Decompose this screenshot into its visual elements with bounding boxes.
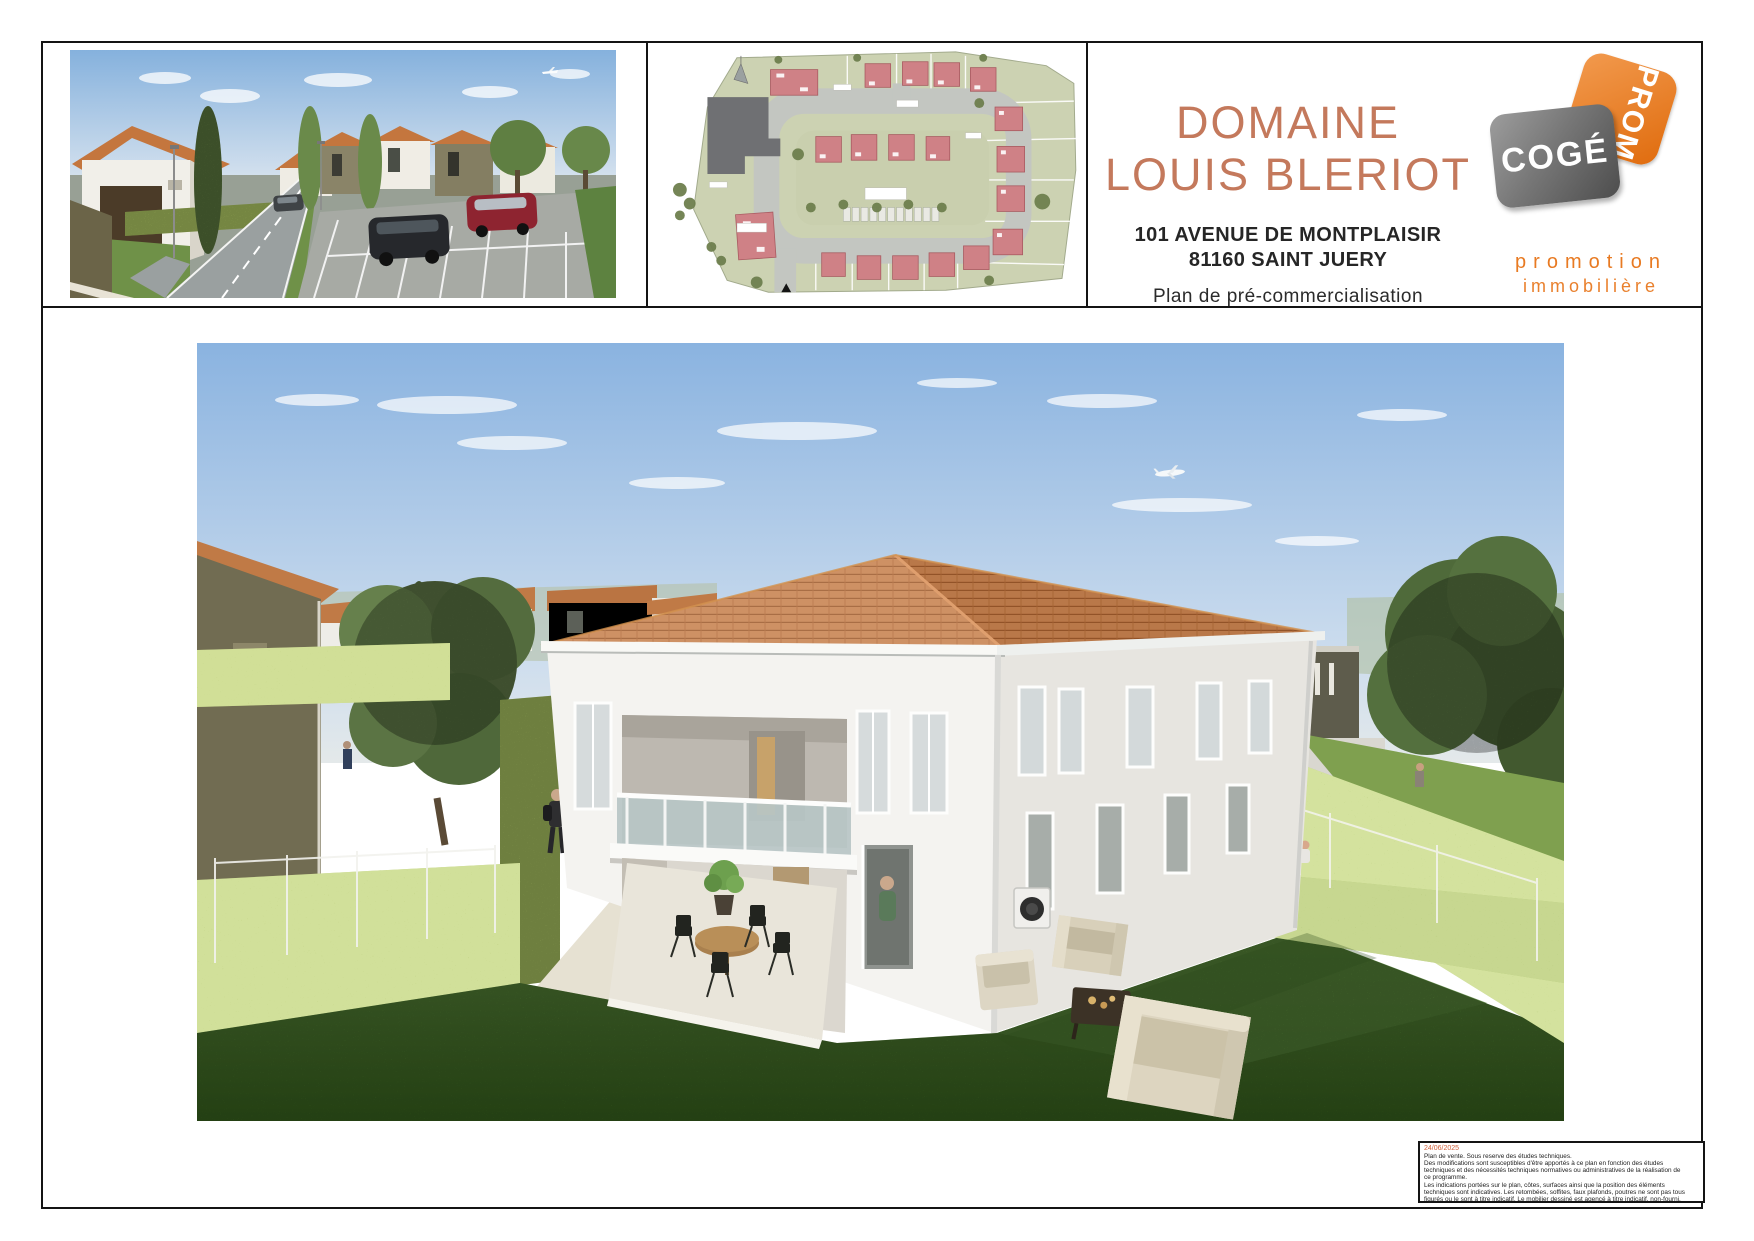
disclaimer-line: Les indications portées sur le plan, côt… — [1424, 1182, 1699, 1189]
address-line2: 81160 SAINT JUERY — [1088, 248, 1488, 273]
disclaimer-line: Plan de vente. Sous reserve des études t… — [1424, 1153, 1699, 1160]
document-subtitle: Plan de pré-commercialisation — [1088, 286, 1488, 308]
logo-tagline-line1: promotion — [1485, 251, 1697, 274]
cogeprom-logo: PROM COGÉ promotion immobilière — [1485, 53, 1697, 303]
logo-tagline: promotion immobilière — [1485, 251, 1697, 297]
logo-tagline-line2: immobilière — [1485, 276, 1697, 297]
disclaimer-line: ce programme. — [1424, 1174, 1699, 1181]
page-frame: DOMAINE LOUIS BLERIOT 101 AVENUE DE MONT… — [41, 41, 1703, 1209]
disclaimer-line: figurés ou le sont à titre indicatif. Le… — [1424, 1196, 1699, 1203]
title-panel: DOMAINE LOUIS BLERIOT 101 AVENUE DE MONT… — [1088, 43, 1701, 306]
project-title-line2: LOUIS BLERIOT — [1088, 149, 1488, 201]
heat-pump-unit — [1014, 888, 1050, 928]
disclaimer-line: Des modifications sont susceptibles d'êt… — [1424, 1160, 1699, 1167]
site-plan-panel — [648, 43, 1088, 306]
address-line1: 101 AVENUE DE MONTPLAISIR — [1088, 223, 1488, 248]
garden-view-image — [197, 343, 1564, 1121]
street-view-image — [70, 50, 616, 298]
street-view-panel — [43, 43, 648, 306]
logo-gray-square: COGÉ — [1488, 103, 1621, 209]
logo-coge-text: COGÉ — [1499, 131, 1611, 181]
project-title-line1: DOMAINE — [1088, 97, 1488, 149]
disclaimer-box: 24/06/2025 Plan de vente. Sous reserve d… — [1418, 1141, 1705, 1203]
disclaimer-line: techniques et des nécessités techniques … — [1424, 1167, 1699, 1174]
disclaimer-line: techniques sont indicatives. Les retombé… — [1424, 1189, 1699, 1196]
site-plan-image — [649, 44, 1085, 305]
project-address: 101 AVENUE DE MONTPLAISIR 81160 SAINT JU… — [1088, 223, 1488, 273]
disclaimer-date: 24/06/2025 — [1424, 1145, 1699, 1153]
header-band: DOMAINE LOUIS BLERIOT 101 AVENUE DE MONT… — [43, 43, 1701, 308]
